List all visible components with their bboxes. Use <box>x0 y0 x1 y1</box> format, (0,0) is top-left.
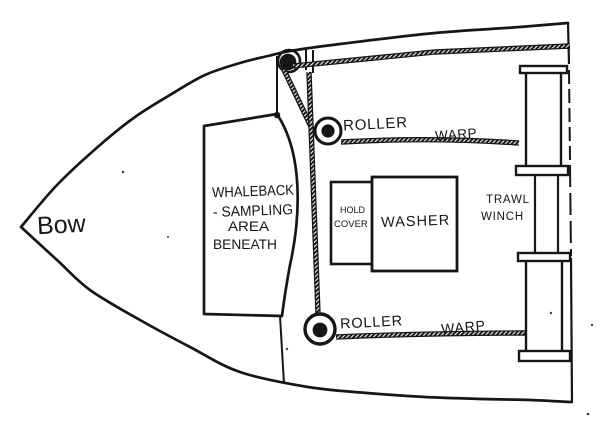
svg-text:BENEATH: BENEATH <box>213 236 277 252</box>
svg-text:TRAWL: TRAWL <box>486 194 530 206</box>
svg-text:WINCH: WINCH <box>481 211 524 223</box>
svg-text:AREA: AREA <box>228 219 269 234</box>
svg-text:WASHER: WASHER <box>381 213 451 231</box>
svg-text:WHALEBACK: WHALEBACK <box>212 183 295 202</box>
svg-text:Bow: Bow <box>36 210 87 241</box>
svg-text:COVER: COVER <box>334 219 368 230</box>
svg-text:ROLLER: ROLLER <box>340 313 404 332</box>
svg-text:ROLLER: ROLLER <box>343 114 409 134</box>
svg-text:HOLD: HOLD <box>340 205 366 215</box>
svg-text:WARP: WARP <box>435 125 478 143</box>
